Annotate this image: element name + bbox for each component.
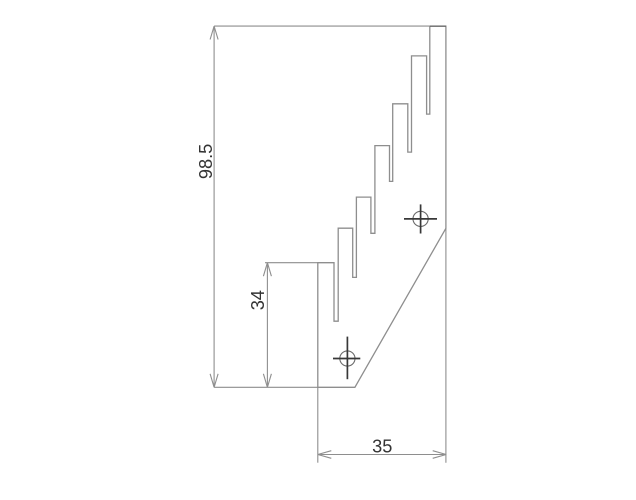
svg-text:98.5: 98.5 (196, 144, 216, 179)
svg-text:34: 34 (248, 290, 268, 310)
svg-text:35: 35 (372, 437, 392, 457)
